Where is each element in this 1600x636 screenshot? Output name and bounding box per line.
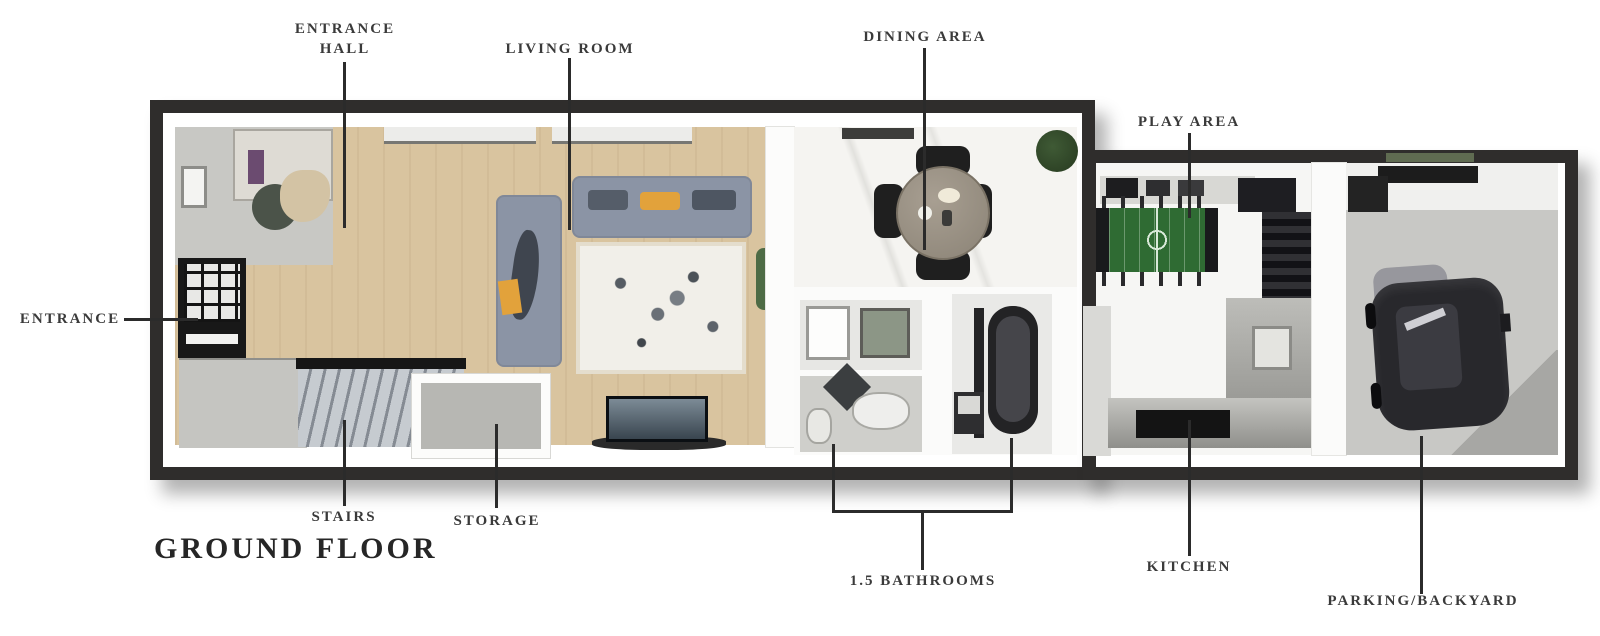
half-bath-toilet: [806, 408, 832, 444]
foosball-rods-top: [1102, 196, 1214, 208]
label-entrance: ENTRANCE: [14, 310, 126, 330]
label-parking-backyard: PARKING/BACKYARD: [1308, 592, 1538, 612]
label-stairs: STAIRS: [300, 508, 388, 528]
kitchen-appliance-1: [1106, 178, 1138, 198]
foosball-rods-bottom: [1102, 272, 1214, 286]
car-mirror: [1500, 313, 1511, 332]
leader-storage: [495, 424, 498, 508]
leader-entrance: [124, 318, 198, 321]
green-roof-strip: [1386, 153, 1474, 162]
entry-cabinet: [179, 358, 307, 448]
bathrooms-bracket-stem: [921, 510, 924, 570]
kitchen-sink: [1252, 326, 1292, 370]
leader-entrance-hall: [343, 62, 346, 228]
sofa-pillow-dark-left: [588, 190, 628, 210]
bathtub-inner: [996, 316, 1030, 422]
leader-stairs: [343, 420, 346, 506]
label-play-area: PLAY AREA: [1118, 113, 1260, 133]
dining-plate: [938, 188, 960, 203]
leader-parking: [1420, 436, 1423, 594]
tv-screen: [606, 396, 708, 442]
storage-room: [412, 374, 550, 458]
foosball-table: [1096, 208, 1218, 272]
car-wheel-rear: [1370, 383, 1382, 410]
kitchen-half-wall: [1083, 306, 1111, 456]
floor-plan-canvas: ENTRANCE HALL LIVING ROOM DINING AREA PL…: [0, 0, 1600, 636]
top-window-sill-2: [552, 127, 692, 144]
leader-living-room: [568, 58, 571, 230]
wall-living-dining: [766, 127, 794, 447]
stove: [1136, 410, 1230, 438]
sofa-pillow-dark-right: [692, 190, 736, 210]
full-bath-sink-basin: [958, 396, 980, 414]
powder-mirror-frame: [806, 306, 850, 360]
half-bath-vanity: [852, 392, 910, 430]
stairs-railing: [296, 358, 466, 369]
kitchen-appliance-3: [1178, 180, 1204, 196]
car: [1368, 253, 1520, 440]
living-room-rug: [576, 242, 746, 374]
entrance-door-slit: [186, 334, 238, 344]
car-wheel-front: [1365, 303, 1377, 330]
floor-title: GROUND FLOOR: [154, 532, 438, 566]
dining-sideboard: [842, 128, 914, 139]
label-storage: STORAGE: [444, 512, 550, 532]
label-kitchen: KITCHEN: [1124, 558, 1254, 578]
kitchen-appliance-2: [1146, 180, 1170, 196]
garage-beam: [1378, 166, 1478, 183]
office-artwork: [248, 150, 264, 184]
fridge: [1238, 178, 1296, 212]
wall-kitchen-parking: [1312, 163, 1346, 455]
leader-kitchen: [1188, 420, 1191, 556]
garage-box: [1348, 176, 1388, 212]
leader-dining-area: [923, 48, 926, 250]
label-entrance-hall: ENTRANCE HALL: [284, 20, 406, 59]
powder-green-window: [860, 308, 910, 358]
label-bathrooms: 1.5 BATHROOMS: [838, 572, 1008, 592]
dining-plant: [1036, 130, 1078, 172]
entrance-door-window: [184, 264, 240, 322]
dining-vase: [942, 210, 952, 226]
bathrooms-bracket-right: [1010, 438, 1013, 513]
top-window-sill-1: [384, 127, 536, 144]
sofa-pillow-orange: [640, 192, 680, 210]
wall-picture-frame: [181, 166, 207, 208]
bathrooms-bracket-left: [832, 444, 835, 513]
label-living-room: LIVING ROOM: [488, 40, 652, 60]
label-dining-area: DINING AREA: [843, 28, 1007, 48]
leader-play-area: [1188, 133, 1191, 218]
